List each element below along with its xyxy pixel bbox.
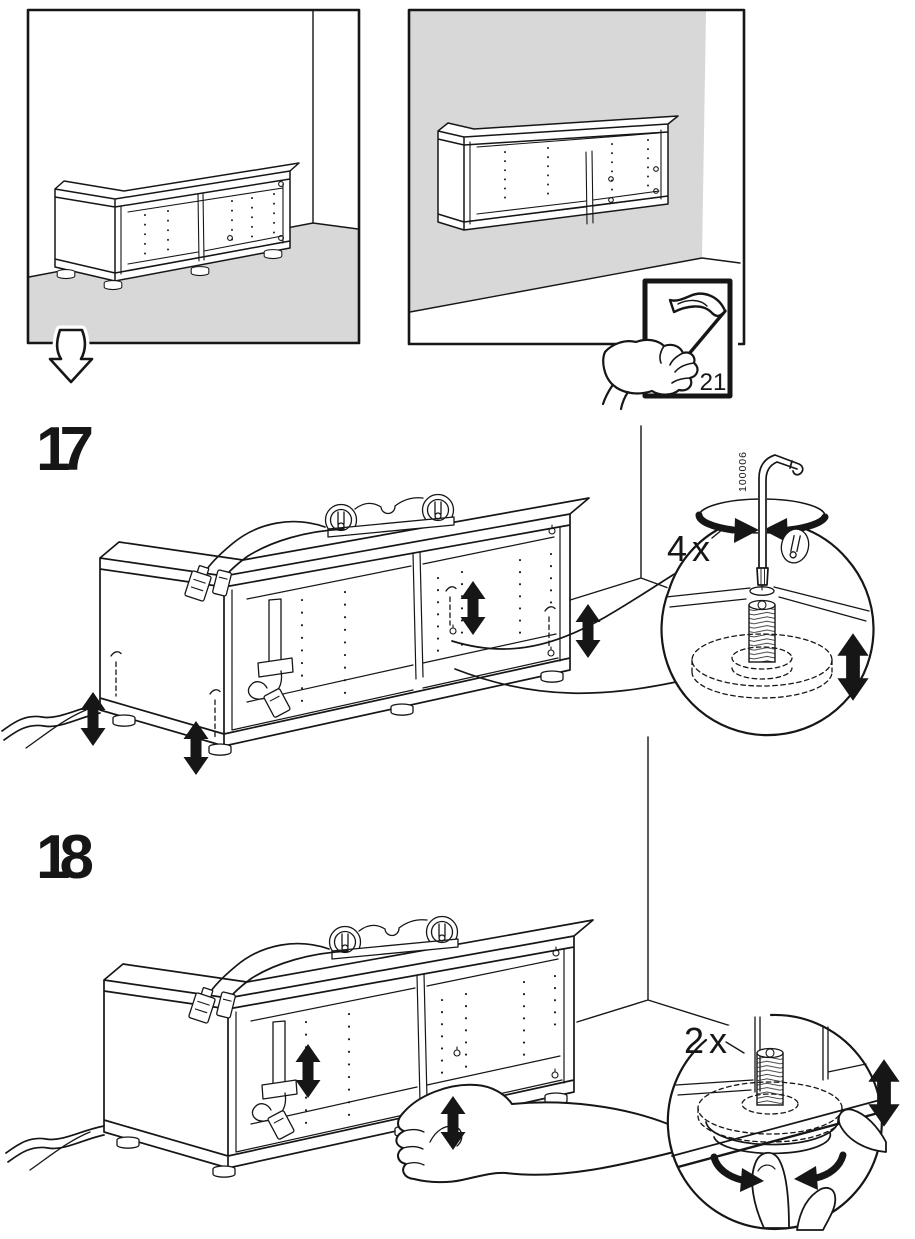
page-flip-page-number: 21 bbox=[700, 369, 727, 396]
wall-panel: 21 bbox=[409, 10, 744, 409]
step-17: 17 bbox=[2, 415, 874, 775]
instruction-drawing: 21 17 bbox=[0, 0, 915, 1239]
leveling-foot-screw bbox=[757, 1049, 783, 1106]
detail-circle-18: 2x bbox=[668, 1015, 900, 1230]
step-18: 18 bbox=[6, 737, 900, 1230]
step18-number: 18 bbox=[36, 823, 94, 892]
detail-circle-17: 4x 100006 bbox=[660, 452, 874, 735]
leveling-foot-screw bbox=[749, 601, 775, 663]
continue-down-arrow-icon bbox=[50, 330, 92, 382]
instruction-page: 21 17 bbox=[0, 0, 915, 1239]
page-flip-icon: 21 bbox=[603, 281, 730, 409]
room-corner-lines bbox=[577, 737, 731, 1026]
tool-part-number: 100006 bbox=[737, 452, 749, 492]
step17-number: 17 bbox=[36, 415, 94, 484]
room-corner-lines bbox=[567, 426, 671, 601]
floor-panel bbox=[28, 10, 359, 382]
